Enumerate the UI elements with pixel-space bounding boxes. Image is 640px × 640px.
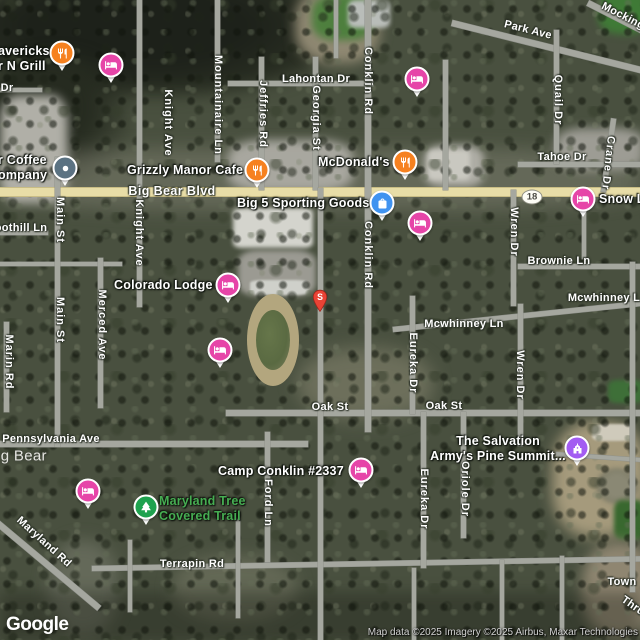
bed-icon: [408, 211, 433, 236]
street-label: Oak St: [426, 400, 463, 412]
street-label: Eureka Dr: [407, 333, 419, 394]
terrain-patch: [233, 208, 313, 248]
svg-text:S: S: [317, 292, 323, 302]
street-label: Dr: [1, 82, 14, 94]
bed-icon: [571, 187, 596, 212]
bed-icon: [208, 338, 233, 363]
street-label: Conklin Rd: [362, 47, 374, 115]
road: [236, 518, 240, 618]
road: [334, 0, 338, 58]
colorado-lodge-label[interactable]: Colorado Lodge: [114, 278, 213, 293]
street-label: Mcwhinney Ln: [424, 318, 503, 330]
grizzly-manor-cafe-label[interactable]: Grizzly Manor Cafe: [127, 163, 243, 178]
bed-icon: [349, 458, 374, 483]
street-label: Terrapin Rd: [160, 558, 224, 570]
street-label: Ford Ln: [262, 479, 274, 527]
restaurant-icon: [245, 158, 270, 183]
google-logo[interactable]: Google: [6, 614, 68, 636]
bed-icon: [99, 53, 124, 78]
street-label: Main St: [54, 297, 66, 343]
maryland-trail-label[interactable]: Maryland TreeCovered Trail: [159, 494, 246, 523]
terrain-patch: [428, 150, 470, 180]
dot-icon: [53, 156, 78, 181]
terrain-patch: [614, 500, 640, 540]
search-result-marker-s[interactable]: S: [312, 289, 328, 317]
big5-sporting-goods-label[interactable]: Big 5 Sporting Goods: [237, 196, 369, 211]
bed-icon: [216, 273, 241, 298]
street-label: Conklin Rd: [362, 221, 374, 289]
bed-icon: [405, 67, 430, 92]
bed-icon: [76, 479, 101, 504]
road: [0, 262, 122, 266]
street-label: Tahoe Dr: [537, 151, 586, 163]
street-label: Wren Dr: [508, 207, 520, 257]
street-label: Lahontan Dr: [282, 73, 350, 85]
mcdonalds-label[interactable]: McDonald's: [318, 155, 390, 170]
street-label: Pennsylvania Ave: [2, 433, 100, 445]
street-label: Town: [607, 576, 636, 588]
street-label: Georgia St: [310, 85, 322, 151]
road: [630, 262, 635, 592]
road: [318, 188, 323, 640]
shopping-bag-icon: [370, 191, 395, 216]
salvation-army-label[interactable]: The SalvationArmy's Pine Summit...: [428, 434, 568, 463]
street-label: Main St: [54, 197, 66, 243]
street-label: Mocking: [599, 0, 640, 32]
race-track-infield: [256, 310, 290, 370]
street-label: Brownie Ln: [528, 255, 591, 267]
road: [443, 60, 448, 190]
restaurant-icon: [50, 41, 75, 66]
street-label: Quail Dr: [552, 75, 564, 126]
restaurant-icon: [393, 150, 418, 175]
route-18-shield: 18: [522, 190, 543, 205]
map-canvas[interactable]: 18 Google Map data ©2025 Imagery ©2025 A…: [0, 0, 640, 640]
terrain-patch: [608, 380, 640, 403]
terrain-patch: [250, 280, 308, 295]
mavericks-grill-label[interactable]: avericksr N Grill: [0, 44, 50, 73]
church-icon: [565, 436, 590, 461]
snow-lodge-label[interactable]: Snow L: [599, 192, 640, 207]
street-label: Knight Ave: [162, 89, 174, 156]
street-label: Merced Ave: [96, 290, 108, 361]
street-label: Thru: [619, 594, 640, 619]
camp-conklin-label[interactable]: Camp Conklin #2337: [218, 464, 344, 479]
terrain-patch: [238, 250, 316, 296]
coffee-company-label[interactable]: r Coffeeompany: [0, 153, 47, 182]
street-label: Marin Rd: [3, 334, 15, 389]
road: [128, 540, 132, 612]
street-label: Big Bear Blvd: [128, 184, 215, 198]
street-label: Eureka Dr: [418, 469, 430, 530]
street-label: oothill Ln: [0, 222, 47, 234]
street-label: Mcwhinney L: [568, 292, 640, 304]
road: [0, 513, 101, 611]
street-label: ig Bear: [0, 448, 47, 465]
street-label: Wren Dr: [514, 350, 526, 400]
tree-icon: [134, 495, 159, 520]
street-label: Mountainaire Ln: [212, 55, 224, 155]
terrain-patch: [424, 145, 484, 187]
map-attribution[interactable]: Map data ©2025 Imagery ©2025 Airbus, Max…: [368, 627, 638, 638]
street-label: Knight Ave: [133, 199, 145, 266]
terrain-patch: [592, 424, 634, 441]
street-label: Jeffries Rd: [257, 80, 269, 148]
street-label: Oak St: [312, 401, 349, 413]
street-label: Oriole Dr: [459, 461, 471, 517]
